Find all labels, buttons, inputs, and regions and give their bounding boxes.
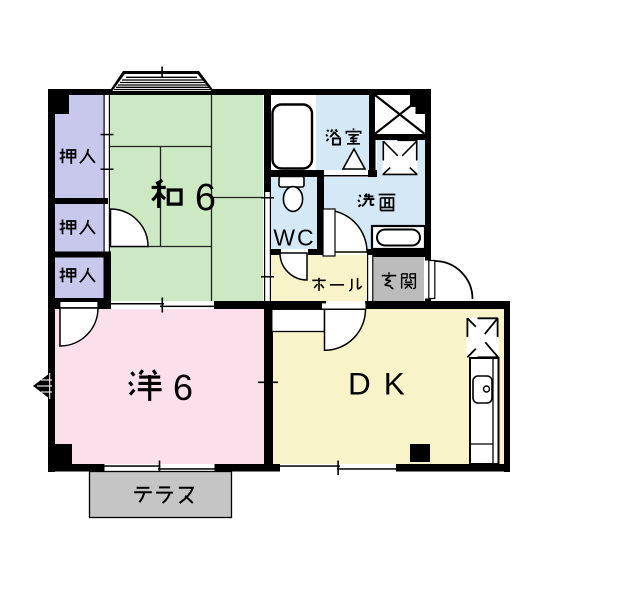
svg-text:WC: WC [273, 225, 315, 251]
svg-text:6: 6 [195, 177, 216, 219]
svg-text:6: 6 [173, 367, 193, 408]
svg-text:DK: DK [348, 366, 418, 402]
